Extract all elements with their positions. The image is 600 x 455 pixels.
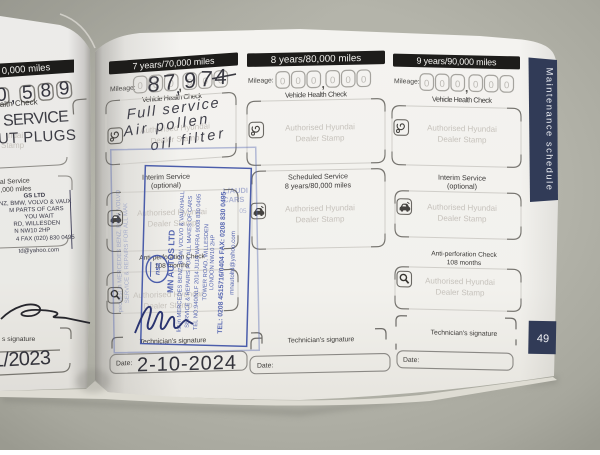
svg-text:Authorised Hyundai: Authorised Hyundai (285, 122, 355, 132)
svg-text:8: 8 (147, 71, 161, 96)
svg-text:Technician's signature: Technician's signature (288, 336, 355, 344)
svg-text:8: 8 (40, 80, 52, 102)
svg-text:s signature: s signature (2, 336, 35, 343)
svg-text:Date:: Date: (116, 360, 132, 367)
svg-text:Dealer Stamp: Dealer Stamp (296, 214, 345, 224)
svg-text:Date:: Date: (403, 357, 419, 364)
svg-text:7: 7 (163, 69, 177, 95)
svg-text:Mileage:: Mileage: (248, 77, 274, 85)
svg-text:Maintenance schedule: Maintenance schedule (545, 68, 556, 192)
svg-text:MN AUTOS LTD: MN AUTOS LTD (165, 230, 177, 293)
svg-text:8 years/80,000 miles: 8 years/80,000 miles (285, 180, 352, 190)
svg-text:(optional): (optional) (447, 181, 477, 191)
svg-text:05: 05 (239, 208, 247, 215)
svg-text:2-10-2024: 2-10-2024 (137, 352, 236, 377)
svg-text:N NW10 2HP: N NW10 2HP (14, 228, 50, 235)
svg-text:49: 49 (537, 333, 550, 345)
svg-text:Dealer Stamp: Dealer Stamp (438, 135, 487, 145)
svg-text:9: 9 (58, 78, 70, 100)
svg-text:7: 7 (199, 66, 213, 91)
svg-text:YOU WAIT: YOU WAIT (24, 214, 54, 221)
svg-text:Vehicle Health Check: Vehicle Health Check (285, 89, 347, 99)
svg-text:8 years/80,000 miles: 8 years/80,000 miles (271, 53, 361, 66)
svg-text:Authorised Hyundai: Authorised Hyundai (285, 203, 355, 213)
svg-text:Authorised Hyundai: Authorised Hyundai (425, 276, 495, 287)
svg-text:1/2023: 1/2023 (0, 347, 52, 372)
svg-text:Authorised Hyundai: Authorised Hyundai (427, 123, 497, 134)
svg-text:Authorised Hyundai: Authorised Hyundai (427, 202, 497, 213)
svg-text:Date:: Date: (257, 362, 273, 369)
svg-text:Vehicle Health Check: Vehicle Health Check (432, 94, 492, 104)
svg-text:Dealer Stamp: Dealer Stamp (436, 288, 485, 298)
svg-text:Mileage:: Mileage: (394, 78, 420, 86)
svg-text:9: 9 (184, 67, 196, 93)
svg-text:,: , (465, 81, 468, 95)
svg-text:nsa: nsa (154, 263, 161, 275)
svg-text:(optional): (optional) (151, 180, 181, 190)
svg-text:GS LTD: GS LTD (24, 193, 46, 200)
svg-text:Dealer Stamp: Dealer Stamp (296, 133, 345, 143)
svg-text:Dealer Stamp: Dealer Stamp (438, 214, 487, 224)
svg-text:9 years/90,000 miles: 9 years/90,000 miles (417, 56, 497, 68)
svg-text:108 months: 108 months (447, 259, 482, 267)
svg-text:,: , (321, 77, 324, 91)
